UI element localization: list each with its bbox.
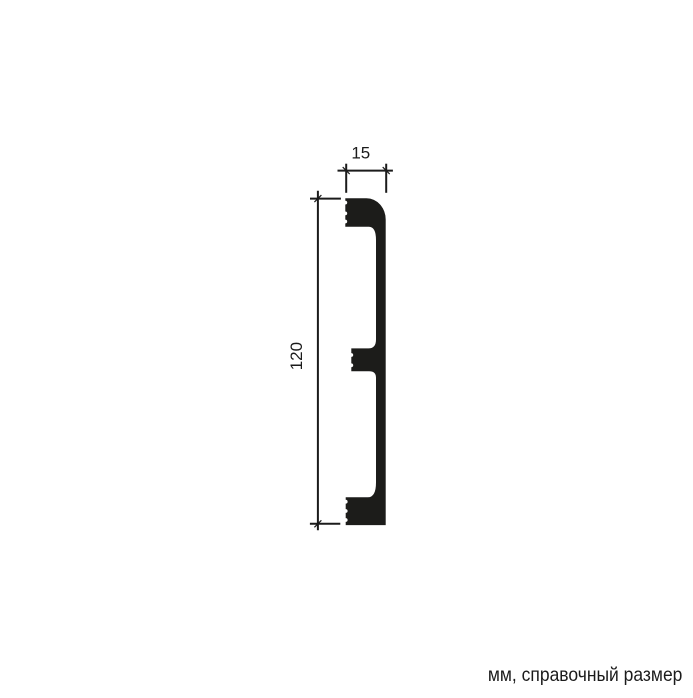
svg-text:120: 120 — [287, 342, 306, 370]
svg-text:15: 15 — [351, 144, 370, 163]
svg-text:мм, справочный размер: мм, справочный размер — [488, 664, 683, 686]
